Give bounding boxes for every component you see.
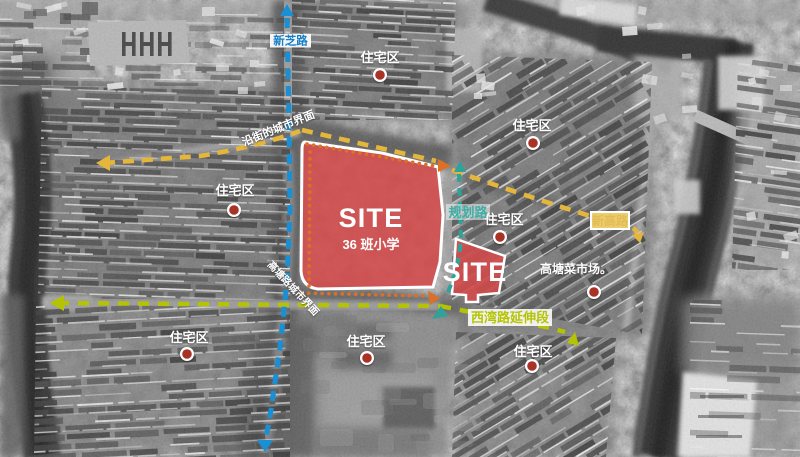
svg-text:西湾路延伸段: 西湾路延伸段	[471, 310, 549, 325]
svg-text:住宅区: 住宅区	[484, 212, 523, 227]
svg-text:SITE: SITE	[443, 257, 508, 287]
svg-text:住宅区: 住宅区	[360, 50, 399, 65]
svg-text:规划路: 规划路	[448, 205, 488, 220]
svg-text:住宅区: 住宅区	[513, 344, 552, 359]
svg-text:新高路: 新高路	[592, 213, 629, 228]
svg-text:36 班小学: 36 班小学	[342, 237, 399, 252]
svg-text:住宅区: 住宅区	[346, 334, 385, 349]
svg-text:SITE: SITE	[339, 203, 404, 233]
svg-text:住宅区: 住宅区	[215, 183, 254, 198]
svg-text:新芝路: 新芝路	[273, 34, 308, 48]
svg-text:住宅区: 住宅区	[512, 118, 551, 133]
svg-text:高塘菜市场。: 高塘菜市场。	[540, 261, 612, 276]
svg-text:住宅区: 住宅区	[169, 330, 208, 345]
